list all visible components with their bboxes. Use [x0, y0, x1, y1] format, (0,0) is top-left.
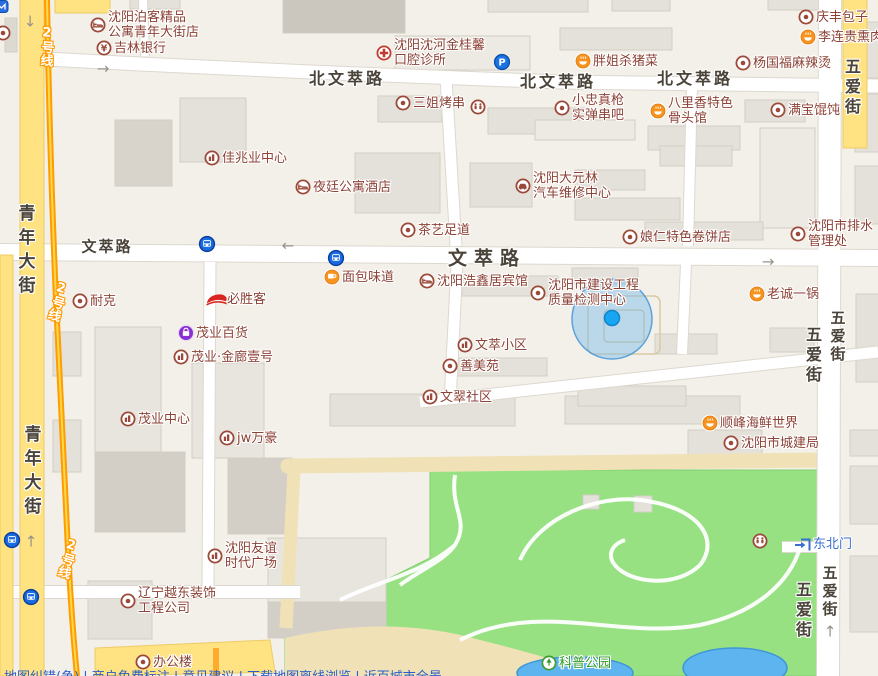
poi-label: 茂业中心	[138, 412, 190, 427]
building-icon	[120, 411, 136, 427]
poi-label: 善美苑	[460, 359, 499, 374]
dot-icon	[554, 100, 570, 116]
poi-label: 沈阳市排水管理处	[808, 219, 873, 249]
road-label: 北文萃路	[309, 65, 385, 89]
svg-text:¥: ¥	[101, 43, 108, 54]
poi-label: 吉林银行	[114, 41, 166, 56]
hotel-icon	[419, 273, 435, 289]
poi-label: 三姐烤串	[413, 96, 465, 111]
poi-label: 庆丰包子	[816, 10, 868, 25]
food-icon	[748, 285, 766, 303]
gate-icon	[794, 537, 812, 551]
building-icon	[207, 548, 223, 564]
dot-icon	[790, 226, 806, 242]
road-label: 文萃路	[448, 244, 526, 271]
poi-label: 夜廷公寓酒店	[313, 180, 391, 195]
poi-label: 沈阳市建设工程质量检测中心	[548, 278, 639, 308]
svg-text:P: P	[498, 58, 505, 69]
dot-icon	[530, 285, 546, 301]
map-viewport[interactable]: 沈阳泊客精品公寓青年大街店¥吉林银行沈阳沈河金桂馨口腔诊所三姐烤串P胖姐杀猪菜杨…	[0, 0, 878, 676]
cafe-icon	[323, 268, 341, 286]
poi-label: 老诚一锅	[767, 287, 819, 302]
poi-label: 面包味道	[342, 270, 394, 285]
dot-icon	[400, 222, 416, 238]
road-label: 青年大街	[19, 425, 44, 521]
road-label: 五爱街	[790, 581, 814, 641]
poi-label: 文萃小区	[475, 338, 527, 353]
traffic-direction-arrow: ↓	[24, 15, 37, 30]
poi-label: 沈阳沈河金桂馨口腔诊所	[394, 38, 485, 68]
bus-icon	[23, 589, 40, 606]
building-icon	[219, 430, 235, 446]
poi-label: 茂业·金廊壹号	[191, 350, 273, 365]
poi-label: 必胜客	[227, 292, 266, 307]
parking-icon: P	[494, 54, 511, 71]
map-footer-links[interactable]: 地图纠错(争) | 商户免费标注 | 意见建议 | 下载地图离线浏览 | 近百城…	[4, 666, 442, 676]
metro-line-label: 2号线	[52, 536, 82, 581]
poi-label: 科普公园	[559, 656, 611, 671]
bus-icon	[4, 532, 21, 549]
poi-label: 辽宁越东装饰工程公司	[138, 586, 216, 616]
bank-icon: ¥	[96, 40, 112, 56]
wc-icon	[752, 533, 768, 549]
car-icon	[515, 178, 531, 194]
footer-link-text[interactable]: 地图纠错(争) | 商户免费标注 | 意见建议 | 下载地图离线浏览 | 近百城…	[4, 670, 442, 676]
food-icon	[649, 102, 667, 120]
traffic-direction-arrow: ←	[282, 239, 295, 254]
road-label: 北文萃路	[657, 65, 733, 89]
hotel-icon	[90, 17, 106, 33]
shopping-icon	[178, 325, 195, 342]
markers-layer: 沈阳泊客精品公寓青年大街店¥吉林银行沈阳沈河金桂馨口腔诊所三姐烤串P胖姐杀猪菜杨…	[0, 0, 878, 676]
park-icon	[541, 655, 557, 671]
building-icon	[422, 389, 438, 405]
dot-icon	[723, 435, 739, 451]
poi-label: 顺峰海鲜世界	[720, 416, 798, 431]
road-label: 北文萃路	[520, 68, 596, 92]
road-label: 五爱街	[820, 565, 841, 619]
traffic-direction-arrow: ↑	[25, 535, 38, 550]
poi-label: 杨国福麻辣烫	[753, 56, 831, 71]
dot-icon	[770, 102, 786, 118]
poi-label: 茶艺足道	[418, 223, 470, 238]
wc-icon	[470, 99, 486, 115]
dot-icon	[735, 55, 751, 71]
poi-label: 茂业百货	[196, 326, 248, 341]
poi-label: 东北门	[813, 537, 852, 552]
road-label: 青年大街	[13, 204, 38, 300]
road-label: 五爱街	[828, 310, 849, 364]
pizzahut-icon	[205, 291, 229, 307]
metro-line-label: 2号线	[35, 25, 57, 67]
poi-label: 娘仁特色卷饼店	[640, 230, 731, 245]
poi-label: 沈阳友谊时代广场	[225, 541, 277, 571]
building-icon	[173, 349, 189, 365]
dot-icon	[442, 358, 458, 374]
poi-label: 沈阳市城建局	[741, 436, 819, 451]
dot-icon	[0, 25, 11, 41]
poi-label: 沈阳浩鑫居宾馆	[437, 274, 528, 289]
poi-label: 胖姐杀猪菜	[593, 54, 658, 69]
metro-badge-icon	[0, 0, 10, 14]
poi-label: 佳兆业中心	[222, 151, 287, 166]
dot-icon	[798, 9, 814, 25]
road-label: 五爱街	[800, 326, 824, 386]
dot-icon	[72, 293, 88, 309]
food-icon	[701, 414, 719, 432]
dot-icon	[395, 95, 411, 111]
poi-label: 沈阳泊客精品公寓青年大街店	[108, 10, 199, 40]
metro-line-label: 2号线	[42, 279, 72, 324]
hospital-icon	[376, 45, 392, 61]
poi-label: 沈阳大元林汽车维修中心	[533, 171, 611, 201]
building-icon	[457, 337, 473, 353]
poi-label: 满宝馄饨	[788, 103, 840, 118]
road-label: 文萃路	[81, 236, 132, 257]
bus-icon	[199, 236, 216, 253]
road-label: 五爱街	[839, 58, 863, 118]
traffic-direction-arrow: →	[97, 62, 110, 77]
poi-label: 小忠真枪实弹串吧	[572, 93, 624, 123]
food-icon	[799, 28, 817, 46]
poi-label: 耐克	[90, 294, 116, 309]
poi-label: 文翠社区	[440, 390, 492, 405]
dot-icon	[120, 593, 136, 609]
hotel-icon	[295, 179, 311, 195]
poi-label: jw万豪	[237, 431, 277, 446]
poi-label: 李连贵熏肉大饼	[818, 30, 878, 45]
traffic-direction-arrow: →	[762, 255, 775, 270]
building-icon	[204, 150, 220, 166]
dot-icon	[622, 229, 638, 245]
bus-icon	[328, 250, 345, 267]
poi-label: 八里香特色骨头馆	[668, 96, 733, 126]
traffic-direction-arrow: ↑	[824, 625, 837, 640]
